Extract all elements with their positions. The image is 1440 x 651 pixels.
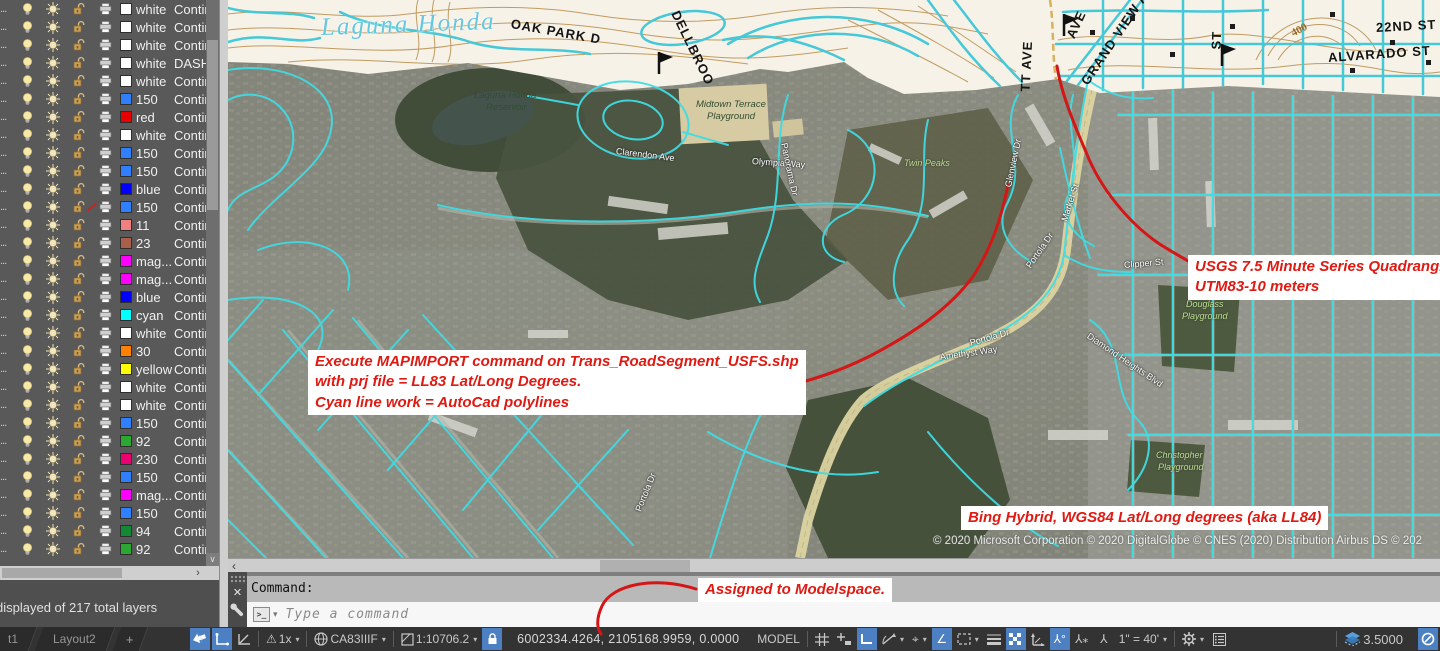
layer-row[interactable]: ... white Continuous [0, 36, 206, 54]
layer-name-truncated: ... [0, 273, 14, 285]
dynamic-ucs-button[interactable] [1028, 628, 1048, 650]
grid-display-button[interactable] [812, 628, 832, 650]
layer-row[interactable]: ... mag... Continuous [0, 270, 206, 288]
layer-color-name: 23 [136, 236, 174, 251]
layer-on-bulb-icon[interactable] [14, 164, 40, 178]
scroll-left-arrow-icon[interactable]: ‹ [232, 559, 236, 573]
layer-plot-printer-icon[interactable] [92, 110, 118, 124]
layer-color-name: white [136, 56, 174, 71]
layer-row[interactable]: ... white Continuous [0, 72, 206, 90]
layer-freeze-sun-icon[interactable] [40, 128, 66, 142]
layer-plot-printer-icon[interactable] [92, 74, 118, 88]
layer-name-truncated: ... [0, 291, 14, 303]
scrollbar-thumb[interactable] [600, 560, 690, 572]
layer-row[interactable]: ... white Continuous [0, 378, 206, 396]
layer-row[interactable]: ... white Continuous [0, 558, 206, 560]
object-snap-button[interactable]: ⌖▾ [909, 628, 930, 650]
layer-color-swatch[interactable] [120, 93, 132, 105]
layer-unlock-icon[interactable] [66, 506, 92, 520]
layer-row[interactable]: ... 94 Continuous [0, 522, 206, 540]
layer-on-bulb-icon[interactable] [14, 56, 40, 70]
layer-name-truncated: ... [0, 489, 14, 501]
layer-plot-printer-icon[interactable] [92, 182, 118, 196]
model-space-button[interactable]: MODEL [754, 628, 803, 650]
layer-color-name: white [136, 128, 174, 143]
layer-row[interactable]: ... 150 Continuous [0, 504, 206, 522]
layer-plot-printer-icon[interactable] [92, 218, 118, 232]
command-palette-grip[interactable]: ✕ [228, 572, 247, 627]
layer-unlock-icon[interactable] [66, 200, 92, 214]
layer-plot-printer-icon[interactable] [92, 2, 118, 16]
layer-color-swatch[interactable] [120, 39, 132, 51]
layer-plot-printer-icon[interactable] [92, 128, 118, 142]
layer-on-bulb-icon[interactable] [14, 362, 40, 376]
layer-linetype[interactable]: Continuous [174, 182, 206, 197]
layer-row[interactable]: ... 23 Continuous [0, 234, 206, 252]
chevron-down-icon[interactable]: ▾ [273, 609, 278, 620]
layer-name-truncated: ... [0, 93, 14, 105]
layer-freeze-sun-icon[interactable] [40, 452, 66, 466]
layer-plot-printer-icon[interactable] [92, 524, 118, 538]
layer-on-bulb-icon[interactable] [14, 308, 40, 322]
lineweight-button[interactable] [984, 628, 1004, 650]
layer-plot-printer-icon[interactable] [92, 20, 118, 34]
layer-color-swatch[interactable] [120, 147, 132, 159]
layer-linetype[interactable]: Continuous [174, 92, 206, 107]
layer-freeze-sun-icon[interactable] [40, 470, 66, 484]
layer-freeze-sun-icon[interactable] [40, 380, 66, 394]
snap-grid-axes-button[interactable] [212, 628, 232, 650]
layer-plot-printer-icon[interactable] [92, 56, 118, 70]
clean-screen-button[interactable] [1418, 628, 1438, 650]
tab-layout1[interactable]: t1 [0, 627, 37, 651]
layer-linetype[interactable]: Continuous [174, 74, 206, 89]
layer-unlock-icon[interactable] [66, 74, 92, 88]
layer-name-truncated: ... [0, 417, 14, 429]
layer-row[interactable]: ... 230 Continuous [0, 450, 206, 468]
annotation-scale-value[interactable]: 1" = 40'▾ [1116, 628, 1170, 650]
layer-linetype[interactable]: Continuous [174, 20, 206, 35]
layer-plot-printer-icon[interactable] [92, 146, 118, 160]
layer-row[interactable]: ... 150 Continuous [0, 144, 206, 162]
layer-plot-printer-icon[interactable] [92, 434, 118, 448]
layer-color-swatch[interactable] [120, 3, 132, 15]
layer-freeze-sun-icon[interactable] [40, 182, 66, 196]
elevation-readout[interactable]: 3.5000 [1341, 628, 1406, 650]
layer-unlock-icon[interactable] [66, 452, 92, 466]
drawing-canvas[interactable]: Laguna HondaOAK PARK DDELLBROOGRAND VIEW… [228, 0, 1440, 558]
layer-plot-printer-icon[interactable] [92, 236, 118, 250]
layer-color-swatch[interactable] [120, 165, 132, 177]
layer-plot-printer-icon[interactable] [92, 488, 118, 502]
layer-color-name: red [136, 110, 174, 125]
lineweight-icon [987, 633, 1001, 645]
layer-plot-printer-icon[interactable] [92, 92, 118, 106]
map-copyright: © 2020 Microsoft Corporation © 2020 Digi… [933, 535, 1422, 547]
layer-on-bulb-icon[interactable] [14, 92, 40, 106]
layer-freeze-sun-icon[interactable] [40, 74, 66, 88]
layer-on-bulb-icon[interactable] [14, 488, 40, 502]
layer-linetype[interactable]: Continuous [174, 362, 206, 377]
layer-color-name: 150 [136, 470, 174, 485]
object-snap-tracking-button[interactable]: ∠ [932, 628, 952, 650]
layer-row[interactable]: ... 150 Continuous [0, 468, 206, 486]
layer-on-bulb-icon[interactable] [14, 290, 40, 304]
layer-plot-printer-icon[interactable] [92, 326, 118, 340]
angle-icon: ∠ [936, 632, 947, 646]
layer-name-truncated: ... [0, 435, 14, 447]
layer-row[interactable]: ... blue Continuous [0, 288, 206, 306]
layer-plot-printer-icon[interactable] [92, 506, 118, 520]
layer-list[interactable]: ... white Continuous ... white [0, 0, 206, 560]
pan-arrows-button[interactable] [190, 628, 210, 650]
layer-linetype[interactable]: DASHED [174, 56, 206, 71]
layer-plot-printer-icon[interactable] [92, 308, 118, 322]
layer-row[interactable]: ... white DASHED [0, 54, 206, 72]
layer-color-swatch[interactable] [120, 327, 132, 339]
layer-color-swatch[interactable] [120, 453, 132, 465]
layer-color-swatch[interactable] [120, 255, 132, 267]
ucs-axes-icon [1031, 633, 1045, 646]
layer-linetype[interactable]: Continuous [174, 344, 206, 359]
layer-list-vscrollbar[interactable]: ∨ [206, 0, 219, 566]
layer-linetype[interactable]: Continuous [174, 488, 206, 503]
annotation-scale-icon-button[interactable]: ⅄ [1094, 628, 1114, 650]
layer-unlock-icon[interactable] [66, 326, 92, 340]
ortho-mode-button[interactable] [857, 628, 877, 650]
layer-on-bulb-icon[interactable] [14, 20, 40, 34]
layer-unlock-icon[interactable] [66, 488, 92, 502]
grid-icon [815, 633, 829, 646]
layer-color-swatch[interactable] [120, 183, 132, 195]
layer-linetype[interactable]: Continuous [174, 236, 206, 251]
layer-color-swatch[interactable] [120, 309, 132, 321]
layer-color-swatch[interactable] [120, 507, 132, 519]
layer-unlock-icon[interactable] [66, 146, 92, 160]
layer-on-bulb-icon[interactable] [14, 470, 40, 484]
layer-freeze-sun-icon[interactable] [40, 200, 66, 214]
layer-linetype[interactable]: Continuous [174, 2, 206, 17]
layer-freeze-sun-icon[interactable] [40, 488, 66, 502]
annotation-line: USGS 7.5 Minute Series Quadrangle [1195, 257, 1440, 277]
grip-dots-icon[interactable] [230, 575, 245, 584]
layer-unlock-icon[interactable] [66, 254, 92, 268]
layer-linetype[interactable]: Continuous [174, 434, 206, 449]
layer-linetype[interactable]: Continuous [174, 38, 206, 53]
layer-row[interactable]: ... red Continuous [0, 108, 206, 126]
layer-color-swatch[interactable] [120, 525, 132, 537]
layer-on-bulb-icon[interactable] [14, 398, 40, 412]
layer-unlock-icon[interactable] [66, 164, 92, 178]
layer-on-bulb-icon[interactable] [14, 254, 40, 268]
layer-plot-printer-icon[interactable] [92, 416, 118, 430]
layer-unlock-icon[interactable] [66, 236, 92, 250]
layer-row[interactable]: ... white Continuous [0, 126, 206, 144]
layer-unlock-icon[interactable] [66, 434, 92, 448]
layer-row[interactable]: ... white Continuous [0, 0, 206, 18]
layer-linetype[interactable]: Continuous [174, 470, 206, 485]
layer-unlock-icon[interactable] [66, 380, 92, 394]
wrench-icon[interactable] [230, 603, 245, 618]
layer-freeze-sun-icon[interactable] [40, 110, 66, 124]
snap-mode-button[interactable] [834, 628, 855, 650]
layer-color-name: 92 [136, 542, 174, 557]
layer-on-bulb-icon[interactable] [14, 218, 40, 232]
layer-color-swatch[interactable] [120, 201, 132, 213]
layer-linetype[interactable]: Continuous [174, 326, 206, 341]
add-layout-button[interactable]: + [112, 627, 147, 651]
layer-freeze-sun-icon[interactable] [40, 344, 66, 358]
layer-on-bulb-icon[interactable] [14, 506, 40, 520]
layer-row[interactable]: ... 92 Continuous [0, 540, 206, 558]
layer-unlock-icon[interactable] [66, 344, 92, 358]
layer-unlock-icon[interactable] [66, 470, 92, 484]
layer-color-name: mag... [136, 254, 174, 269]
layer-freeze-sun-icon[interactable] [40, 326, 66, 340]
layer-plot-printer-icon[interactable] [92, 362, 118, 376]
layer-on-bulb-icon[interactable] [14, 416, 40, 430]
layer-freeze-sun-icon[interactable] [40, 164, 66, 178]
layer-on-bulb-icon[interactable] [14, 38, 40, 52]
layer-plot-printer-icon[interactable] [92, 344, 118, 358]
annotation-visibility-button[interactable]: ⅄° [1050, 628, 1070, 650]
layer-color-swatch[interactable] [120, 399, 132, 411]
layer-unlock-icon[interactable] [66, 2, 92, 16]
layer-linetype[interactable]: Continuous [174, 200, 206, 215]
layer-freeze-sun-icon[interactable] [40, 362, 66, 376]
layer-on-bulb-icon[interactable] [14, 542, 40, 556]
layer-unlock-icon[interactable] [66, 92, 92, 106]
layer-unlock-icon[interactable] [66, 128, 92, 142]
layer-linetype[interactable]: Continuous [174, 254, 206, 269]
layer-row[interactable]: ... 30 Continuous [0, 342, 206, 360]
layer-color-name: white [136, 20, 174, 35]
annotation-warning-button[interactable]: ⚠ 1x▾ [263, 628, 302, 650]
layer-row[interactable]: ... 11 Continuous [0, 216, 206, 234]
coordinate-system-button[interactable]: CA83IIIF▾ [311, 628, 388, 650]
layer-color-swatch[interactable] [120, 291, 132, 303]
layer-linetype[interactable]: Continuous [174, 560, 206, 561]
layer-linetype[interactable]: Continuous [174, 380, 206, 395]
scrollbar-thumb[interactable] [2, 568, 122, 578]
layer-unlock-icon[interactable] [66, 182, 92, 196]
polar-tracking-button[interactable]: ▾ [879, 628, 907, 650]
layer-color-swatch[interactable] [120, 57, 132, 69]
layer-on-bulb-icon[interactable] [14, 326, 40, 340]
selection-cycling-button[interactable]: ▾ [954, 628, 982, 650]
layer-freeze-sun-icon[interactable] [40, 56, 66, 70]
layer-linetype[interactable]: Continuous [174, 416, 206, 431]
layer-unlock-icon[interactable] [66, 362, 92, 376]
layer-linetype[interactable]: Continuous [174, 110, 206, 125]
layer-on-bulb-icon[interactable] [14, 110, 40, 124]
layer-row[interactable]: ... 92 Continuous [0, 432, 206, 450]
layer-color-swatch[interactable] [120, 111, 132, 123]
layer-list-hscrollbar[interactable]: › [0, 566, 219, 580]
mapimport-annotation: Execute MAPIMPORT command on Trans_RoadS… [308, 350, 806, 415]
layer-row[interactable]: ... mag... Continuous [0, 486, 206, 504]
layer-unlock-icon[interactable] [66, 56, 92, 70]
layer-color-swatch[interactable] [120, 489, 132, 501]
layer-color-name: 94 [136, 524, 174, 539]
layer-name-truncated: ... [0, 3, 14, 15]
layer-row[interactable]: ... white Continuous [0, 396, 206, 414]
layer-color-name: 150 [136, 92, 174, 107]
layer-freeze-sun-icon[interactable] [40, 146, 66, 160]
layer-linetype[interactable]: Continuous [174, 164, 206, 179]
layer-unlock-icon[interactable] [66, 308, 92, 322]
layer-on-bulb-icon[interactable] [14, 2, 40, 16]
layer-plot-printer-icon[interactable] [92, 164, 118, 178]
layer-freeze-sun-icon[interactable] [40, 2, 66, 16]
layer-name-truncated: ... [0, 399, 14, 411]
layer-linetype[interactable]: Continuous [174, 506, 206, 521]
annotation-autoscale-button[interactable]: ⅄⁎ [1072, 628, 1092, 650]
layer-row[interactable]: ... white Continuous [0, 324, 206, 342]
layer-plot-printer-icon[interactable] [92, 542, 118, 556]
layer-linetype[interactable]: Continuous [174, 542, 206, 557]
layer-plot-printer-icon[interactable] [92, 398, 118, 412]
layer-unlock-icon[interactable] [66, 272, 92, 286]
layer-freeze-sun-icon[interactable] [40, 38, 66, 52]
layer-unlock-icon[interactable] [66, 290, 92, 304]
layer-unlock-icon[interactable] [66, 38, 92, 52]
layer-linetype[interactable]: Continuous [174, 308, 206, 323]
layer-row[interactable]: ... mag... Continuous [0, 252, 206, 270]
scroll-down-arrow-icon[interactable]: ∨ [206, 553, 219, 566]
layer-plot-printer-icon[interactable] [92, 470, 118, 484]
layer-freeze-sun-icon[interactable] [40, 236, 66, 250]
layer-freeze-sun-icon[interactable] [40, 272, 66, 286]
layer-linetype[interactable]: Continuous [174, 398, 206, 413]
layer-freeze-sun-icon[interactable] [40, 290, 66, 304]
layer-freeze-sun-icon[interactable] [40, 218, 66, 232]
layer-color-swatch[interactable] [120, 219, 132, 231]
layer-freeze-sun-icon[interactable] [40, 308, 66, 322]
layer-unlock-icon[interactable] [66, 218, 92, 232]
layer-row[interactable]: ... 150 Continuous [0, 90, 206, 108]
layer-plot-printer-icon[interactable] [92, 272, 118, 286]
command-prompt-icon[interactable]: >_ [253, 607, 270, 622]
layer-color-swatch[interactable] [120, 21, 132, 33]
layer-row[interactable]: ... cyan Continuous [0, 306, 206, 324]
layer-on-bulb-icon[interactable] [14, 74, 40, 88]
layer-linetype[interactable]: Continuous [174, 290, 206, 305]
layer-name-truncated: ... [0, 525, 14, 537]
layer-on-bulb-icon[interactable] [14, 146, 40, 160]
layer-color-swatch[interactable] [120, 345, 132, 357]
transparency-button[interactable] [1006, 628, 1026, 650]
layer-on-bulb-icon[interactable] [14, 380, 40, 394]
layer-freeze-sun-icon[interactable] [40, 20, 66, 34]
annotation-line: Bing Hybrid, WGS84 Lat/Long degrees (aka… [968, 508, 1321, 528]
layer-on-bulb-icon[interactable] [14, 200, 40, 214]
layer-freeze-sun-icon[interactable] [40, 506, 66, 520]
layer-color-name: white [136, 38, 174, 53]
layer-color-swatch[interactable] [120, 129, 132, 141]
layer-on-bulb-icon[interactable] [14, 128, 40, 142]
layer-on-bulb-icon[interactable] [14, 236, 40, 250]
layer-freeze-sun-icon[interactable] [40, 92, 66, 106]
layer-plot-printer-icon[interactable] [92, 452, 118, 466]
layer-freeze-sun-icon[interactable] [40, 416, 66, 430]
layer-on-bulb-icon[interactable] [14, 344, 40, 358]
layer-row[interactable]: ... 150 Continuous [0, 198, 206, 216]
layer-unlock-icon[interactable] [66, 542, 92, 556]
layer-row[interactable]: ... white Continuous [0, 18, 206, 36]
layer-unlock-icon[interactable] [66, 524, 92, 538]
lock-icon [487, 633, 498, 645]
layer-row[interactable]: ... blue Continuous [0, 180, 206, 198]
layer-on-bulb-icon[interactable] [14, 182, 40, 196]
layer-color-swatch[interactable] [120, 237, 132, 249]
layer-linetype[interactable]: Continuous [174, 452, 206, 467]
tab-layout2[interactable]: Layout2 [35, 627, 115, 651]
layer-color-name: white [136, 380, 174, 395]
layer-freeze-sun-icon[interactable] [40, 398, 66, 412]
layer-on-bulb-icon[interactable] [14, 434, 40, 448]
layer-row[interactable]: ... 150 Continuous [0, 414, 206, 432]
warning-icon: ⚠ [266, 632, 277, 646]
layer-on-bulb-icon[interactable] [14, 272, 40, 286]
layer-color-swatch[interactable] [120, 75, 132, 87]
scrollbar-thumb[interactable] [207, 40, 218, 210]
layer-freeze-sun-icon[interactable] [40, 524, 66, 538]
viewport-scale-button[interactable]: 1:10706.2▾ [398, 628, 480, 650]
drawing-hscrollbar[interactable]: ‹ [228, 558, 1440, 572]
layer-on-bulb-icon[interactable] [14, 452, 40, 466]
ui-lock-button[interactable] [482, 628, 502, 650]
layer-color-swatch[interactable] [120, 471, 132, 483]
workspace-settings-button[interactable]: ▾ [1179, 628, 1207, 650]
layer-color-swatch[interactable] [120, 543, 132, 555]
layer-name-truncated: ... [0, 129, 14, 141]
command-input-row[interactable]: >_ ▾ Type a command [247, 602, 1440, 627]
layer-linetype[interactable]: Continuous [174, 146, 206, 161]
command-input-placeholder[interactable]: Type a command [286, 607, 410, 622]
layer-color-swatch[interactable] [120, 435, 132, 447]
layer-plot-printer-icon[interactable] [92, 38, 118, 52]
layer-linetype[interactable]: Continuous [174, 218, 206, 233]
layer-on-bulb-icon[interactable] [14, 524, 40, 538]
layer-linetype[interactable]: Continuous [174, 272, 206, 287]
layer-linetype[interactable]: Continuous [174, 128, 206, 143]
layer-color-swatch[interactable] [120, 417, 132, 429]
layer-freeze-sun-icon[interactable] [40, 254, 66, 268]
layer-color-swatch[interactable] [120, 381, 132, 393]
customization-button[interactable] [1209, 628, 1229, 650]
layer-row[interactable]: ... 150 Continuous [0, 162, 206, 180]
layer-plot-printer-icon[interactable] [92, 290, 118, 304]
layer-unlock-icon[interactable] [66, 398, 92, 412]
close-icon[interactable]: ✕ [231, 587, 244, 600]
layer-unlock-icon[interactable] [66, 110, 92, 124]
layer-plot-printer-icon[interactable] [92, 380, 118, 394]
layer-color-swatch[interactable] [120, 363, 132, 375]
scroll-right-arrow-icon[interactable]: › [191, 566, 205, 580]
layer-linetype[interactable]: Continuous [174, 524, 206, 539]
layer-row[interactable]: ... yellow Continuous [0, 360, 206, 378]
layer-freeze-sun-icon[interactable] [40, 542, 66, 556]
layer-color-swatch[interactable] [120, 273, 132, 285]
layers-stack-icon [1344, 632, 1361, 646]
isometric-axes-button[interactable] [234, 628, 254, 650]
layer-unlock-icon[interactable] [66, 20, 92, 34]
layer-plot-printer-icon[interactable] [92, 254, 118, 268]
layer-unlock-icon[interactable] [66, 416, 92, 430]
layer-name-truncated: ... [0, 471, 14, 483]
layer-freeze-sun-icon[interactable] [40, 434, 66, 448]
